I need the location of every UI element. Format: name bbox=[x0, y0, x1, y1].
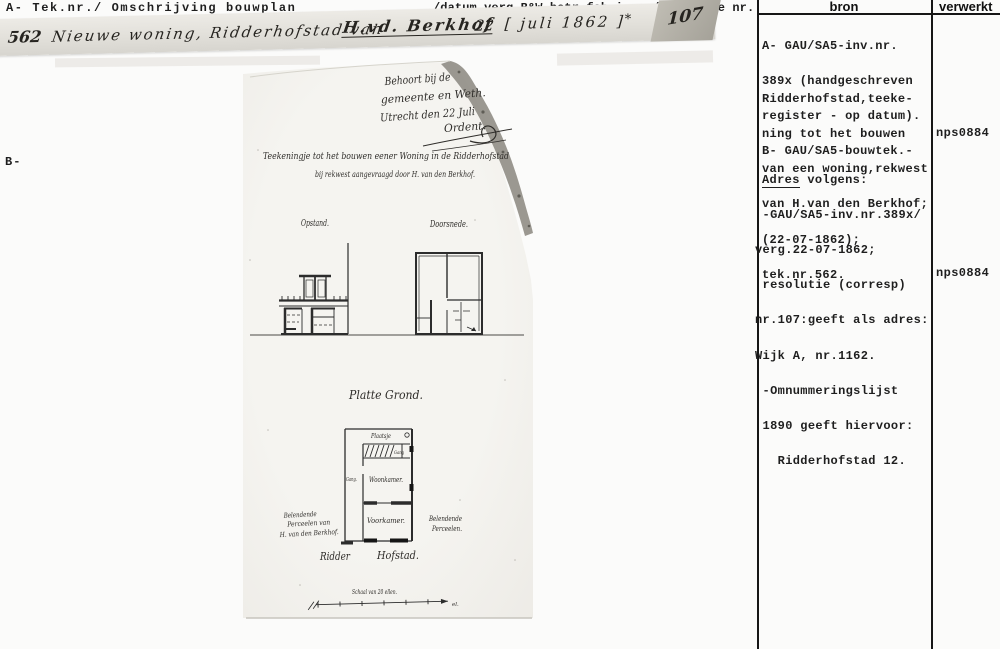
drawing-title: Teekeningje tot het bouwen eener Woning … bbox=[263, 151, 509, 162]
label-woonkamer: Woonkamer. bbox=[369, 475, 403, 484]
scale-bar bbox=[308, 597, 448, 610]
entry-description: Nieuwe woning, Ridderhofstad van bbox=[51, 20, 385, 46]
entry-day: 22 bbox=[474, 16, 495, 35]
stamp-line-4: Ordent. bbox=[444, 119, 487, 135]
label-gang: Gang. bbox=[346, 477, 357, 483]
right-adjacent-line: Belendende bbox=[428, 515, 462, 523]
label-plaatsje: Plaatsje bbox=[370, 433, 391, 440]
left-adjacent-line: Perceelen van bbox=[286, 518, 331, 528]
building-plan-drawing: Behoort bij de gemeente en Weth. Utrecht… bbox=[0, 0, 1000, 649]
front-elevation bbox=[279, 243, 348, 334]
archive-card-page: { "header": { "left": "A- Tek.nr./ Omsch… bbox=[0, 0, 1000, 649]
entry-asterisk: * bbox=[625, 12, 632, 27]
entry-resolutie-nr: 107 bbox=[667, 4, 704, 30]
label-doorsnede: Doorsnede. bbox=[429, 220, 468, 230]
floor-plan bbox=[341, 429, 414, 543]
label-street-hofstad: Hofstad. bbox=[376, 549, 419, 562]
right-adjacent-line: Perceelen. bbox=[431, 525, 462, 533]
scale-label: Schaal van 20 ellen. bbox=[352, 589, 397, 596]
resolutie-patch: 107 bbox=[651, 0, 721, 42]
torn-edge bbox=[441, 61, 533, 236]
stamp-line-1: Behoort bij de bbox=[383, 71, 451, 89]
left-adjacent-line: H. van den Berkhof. bbox=[279, 528, 339, 539]
label-street-ridder: Ridder bbox=[319, 550, 350, 563]
entry-tek-nr: 562 bbox=[7, 27, 43, 47]
stamp-line-2: gemeente en Weth. bbox=[380, 86, 486, 106]
scale-end-label: el. bbox=[452, 602, 459, 608]
label-gang-cell: Gang bbox=[394, 450, 404, 456]
label-opstand: Opstand. bbox=[301, 219, 329, 229]
cross-section bbox=[416, 253, 482, 334]
entry-date: [ juli 1862 ] bbox=[504, 12, 626, 33]
label-voorkamer: Voorkamer. bbox=[367, 516, 405, 525]
label-platte-grond: Platte Grond. bbox=[348, 388, 423, 402]
drawing-subtitle: bij rekwest aangevraagd door H. van den … bbox=[315, 170, 475, 179]
entry-applicant-name: H.vd. Berkhof bbox=[341, 14, 495, 38]
